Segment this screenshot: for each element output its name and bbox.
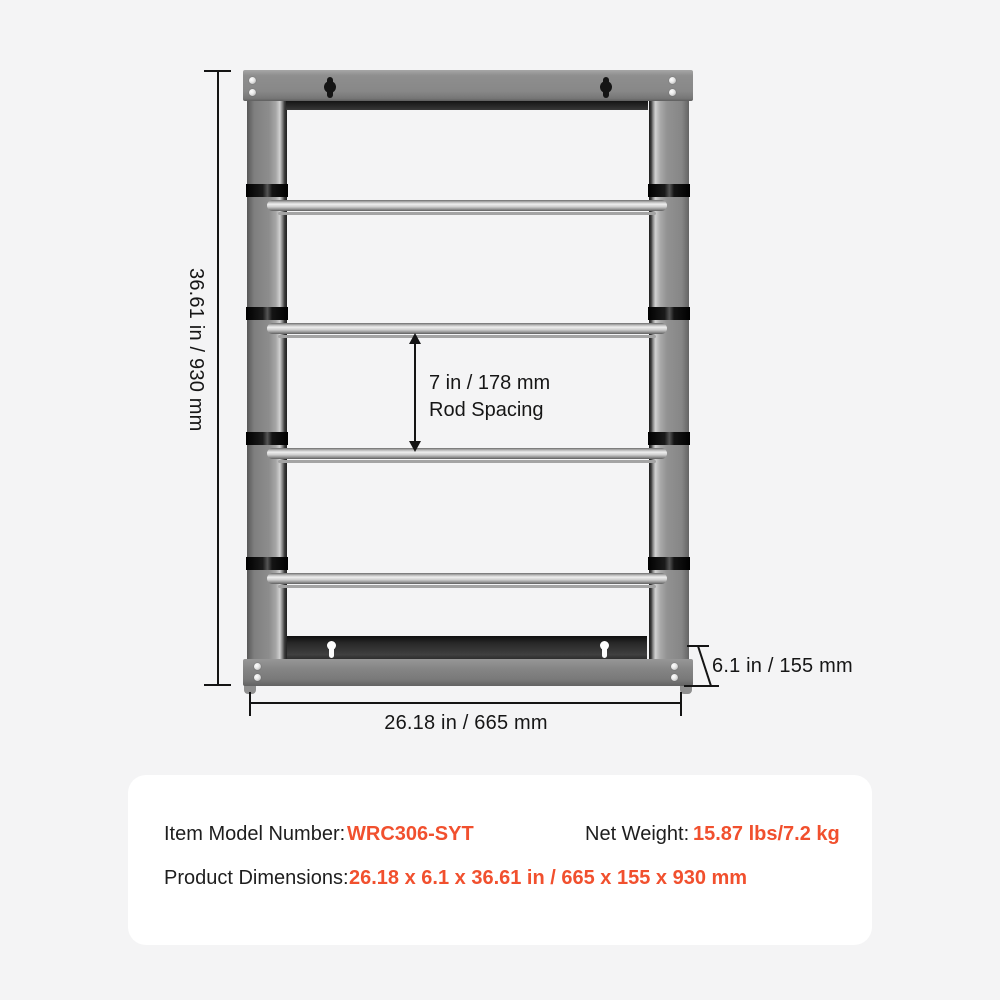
rack-clip	[246, 184, 288, 197]
width-dimension-tick	[249, 692, 251, 716]
rack-back-rod	[278, 212, 656, 215]
arrow-down-icon	[409, 441, 421, 452]
height-dimension-label: 36.61 in / 930 mm	[184, 268, 207, 432]
net-weight-label: Net Weight:	[585, 823, 689, 846]
rod-spacing-value: 7 in / 178 mm	[429, 370, 550, 397]
rack-clip	[648, 432, 690, 445]
product-info-card: Item Model Number: WRC306-SYT Net Weight…	[128, 775, 872, 945]
keyhole-slot-top	[327, 77, 333, 98]
rivet	[249, 77, 256, 84]
rivet	[671, 663, 678, 670]
rivet	[669, 89, 676, 96]
rod-spacing-arrow-line	[414, 340, 416, 445]
rack-clip	[246, 557, 288, 570]
rack-clip	[648, 184, 690, 197]
rivet	[669, 77, 676, 84]
height-dimension-tick	[204, 684, 231, 686]
rack-rod	[267, 573, 667, 584]
product-dimension-diagram: 36.61 in / 930 mm 26.18 in / 665 mm 6.1 …	[0, 0, 1000, 1000]
rod-spacing-caption: Rod Spacing	[429, 397, 550, 424]
depth-dimension-slant-line	[697, 645, 712, 687]
rivet	[254, 663, 261, 670]
width-dimension-label: 26.18 in / 665 mm	[316, 712, 616, 735]
rack-clip	[648, 557, 690, 570]
keyhole-slot-top	[603, 77, 609, 98]
rack-rod	[267, 323, 667, 334]
product-dimensions-value: 26.18 x 6.1 x 36.61 in / 665 x 155 x 930…	[349, 867, 747, 890]
keyhole-slot-bottom	[329, 644, 334, 658]
rod-spacing-label: 7 in / 178 mm Rod Spacing	[429, 370, 550, 424]
rack-rod	[267, 200, 667, 211]
rack-bottom-mounting-plate	[243, 659, 693, 686]
rack-back-rod	[278, 460, 656, 463]
rack-bottom-inner-plate	[287, 636, 647, 660]
height-dimension-tick	[204, 70, 231, 72]
net-weight-value: 15.87 lbs/7.2 kg	[693, 823, 840, 846]
rivet	[254, 674, 261, 681]
rivet	[671, 674, 678, 681]
height-dimension-line	[217, 71, 219, 686]
depth-dimension-label: 6.1 in / 155 mm	[712, 655, 853, 678]
keyhole-slot-bottom	[602, 644, 607, 658]
product-dimensions-label: Product Dimensions:	[164, 867, 349, 890]
rack-clip	[246, 432, 288, 445]
model-number-value: WRC306-SYT	[347, 823, 474, 846]
rivet	[249, 89, 256, 96]
rack-clip	[246, 307, 288, 320]
depth-dimension-tick	[684, 685, 719, 687]
model-number-label: Item Model Number:	[164, 823, 345, 846]
rack-back-rod	[278, 335, 656, 338]
rack-top-mounting-plate	[243, 70, 693, 101]
width-dimension-line	[250, 702, 682, 704]
width-dimension-tick	[680, 692, 682, 716]
rack-top-inner-shadow	[286, 101, 648, 110]
arrow-up-icon	[409, 333, 421, 344]
rack-rod	[267, 448, 667, 459]
rack-back-rod	[278, 585, 656, 588]
rack-clip	[648, 307, 690, 320]
